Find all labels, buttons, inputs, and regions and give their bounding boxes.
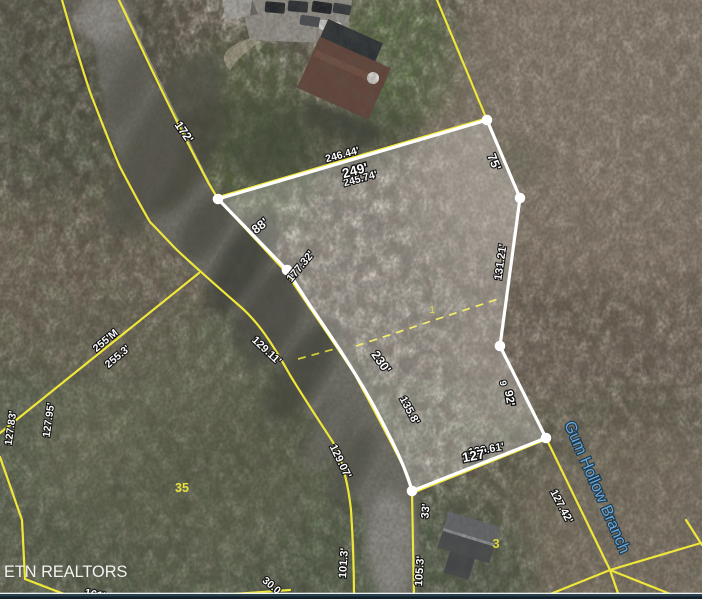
svg-text:105.3': 105.3' [413, 555, 427, 586]
svg-text:1: 1 [429, 304, 435, 316]
svg-text:33': 33' [419, 503, 432, 519]
svg-text:3: 3 [492, 536, 499, 551]
svg-text:101.3': 101.3' [337, 547, 351, 578]
svg-text:ETN REALTORS: ETN REALTORS [4, 563, 127, 581]
svg-text:35: 35 [175, 481, 189, 495]
